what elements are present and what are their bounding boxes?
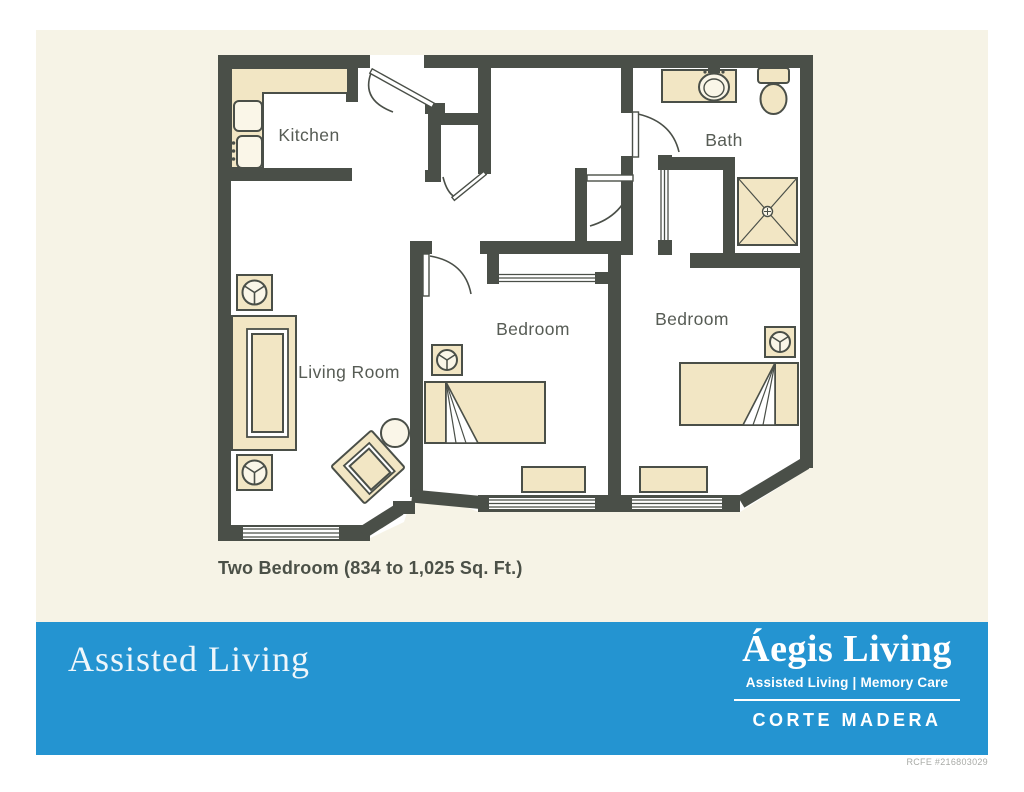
side-table-icon [237,455,272,490]
bed-icon [425,382,545,443]
bed-icon [680,363,798,425]
brand-tagline: Assisted Living | Memory Care [734,675,960,690]
label-kitchen: Kitchen [278,125,339,145]
living-room-window [243,527,339,539]
label-bedroom-1: Bedroom [496,319,570,339]
brand-location: CORTE MADERA [734,710,960,731]
page: { "rooms": { "kitchen": "Kitchen", "bath… [0,0,1024,792]
bedroom2-window [632,498,722,509]
floorplan-drawing: Kitchen Bath Living Room Bedroom Bedroom [36,30,988,622]
brand-name: Áegis Living [734,630,960,670]
label-living-room: Living Room [298,362,400,382]
license-number: RCFE #216803029 [906,757,988,767]
nightstand-icon [765,327,795,357]
logo-divider [734,699,960,701]
sofa-icon [232,316,296,450]
label-bedroom-2: Bedroom [655,309,729,329]
refrigerator-icon [234,101,262,131]
side-table-icon [237,275,272,310]
kitchen-sink-icon [237,136,262,168]
bedroom1-closet-sliding-doors [499,272,595,284]
toilet-icon [758,68,789,114]
dresser-icon [640,467,707,492]
footer-title: Assisted Living [68,638,310,680]
bedroom1-window [489,498,595,509]
shower-icon [738,178,797,245]
label-bath: Bath [705,130,743,150]
brand-logo: Áegis Living Assisted Living | Memory Ca… [734,630,960,731]
bedroom2-closet-sliding-doors [659,170,671,240]
dresser-icon [522,467,585,492]
floorplan-panel: Kitchen Bath Living Room Bedroom Bedroom… [36,30,988,622]
floorplan-caption: Two Bedroom (834 to 1,025 Sq. Ft.) [218,558,523,579]
nightstand-icon [432,345,462,375]
footer-band: Assisted Living Áegis Living Assisted Li… [36,622,988,755]
round-table-icon [381,419,409,447]
